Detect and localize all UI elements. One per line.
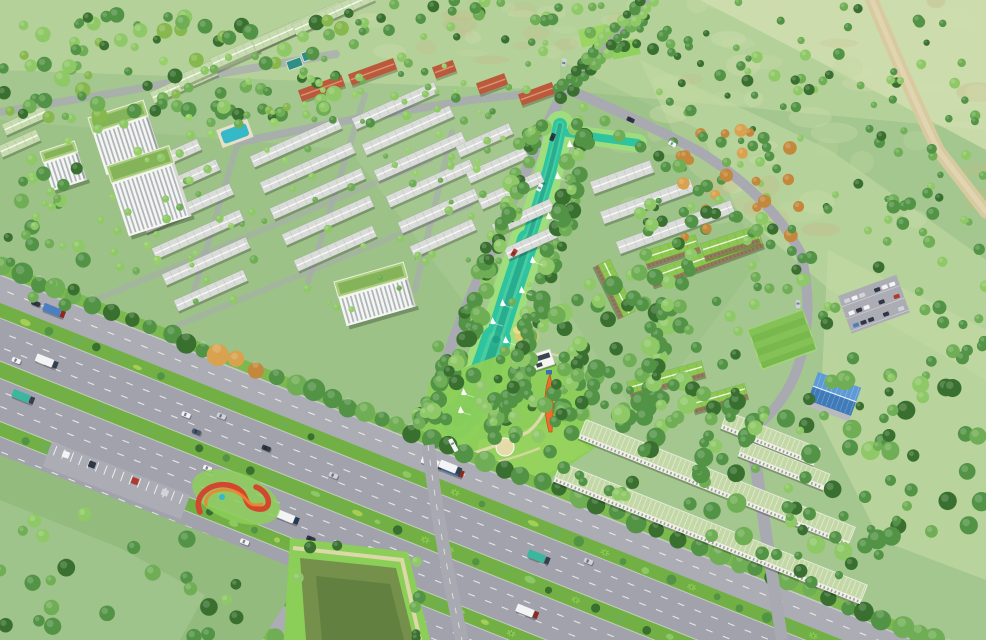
aerial-masterplan-render xyxy=(0,0,986,640)
render-canvas xyxy=(0,0,986,640)
pond-park xyxy=(284,538,430,640)
car xyxy=(796,300,801,308)
